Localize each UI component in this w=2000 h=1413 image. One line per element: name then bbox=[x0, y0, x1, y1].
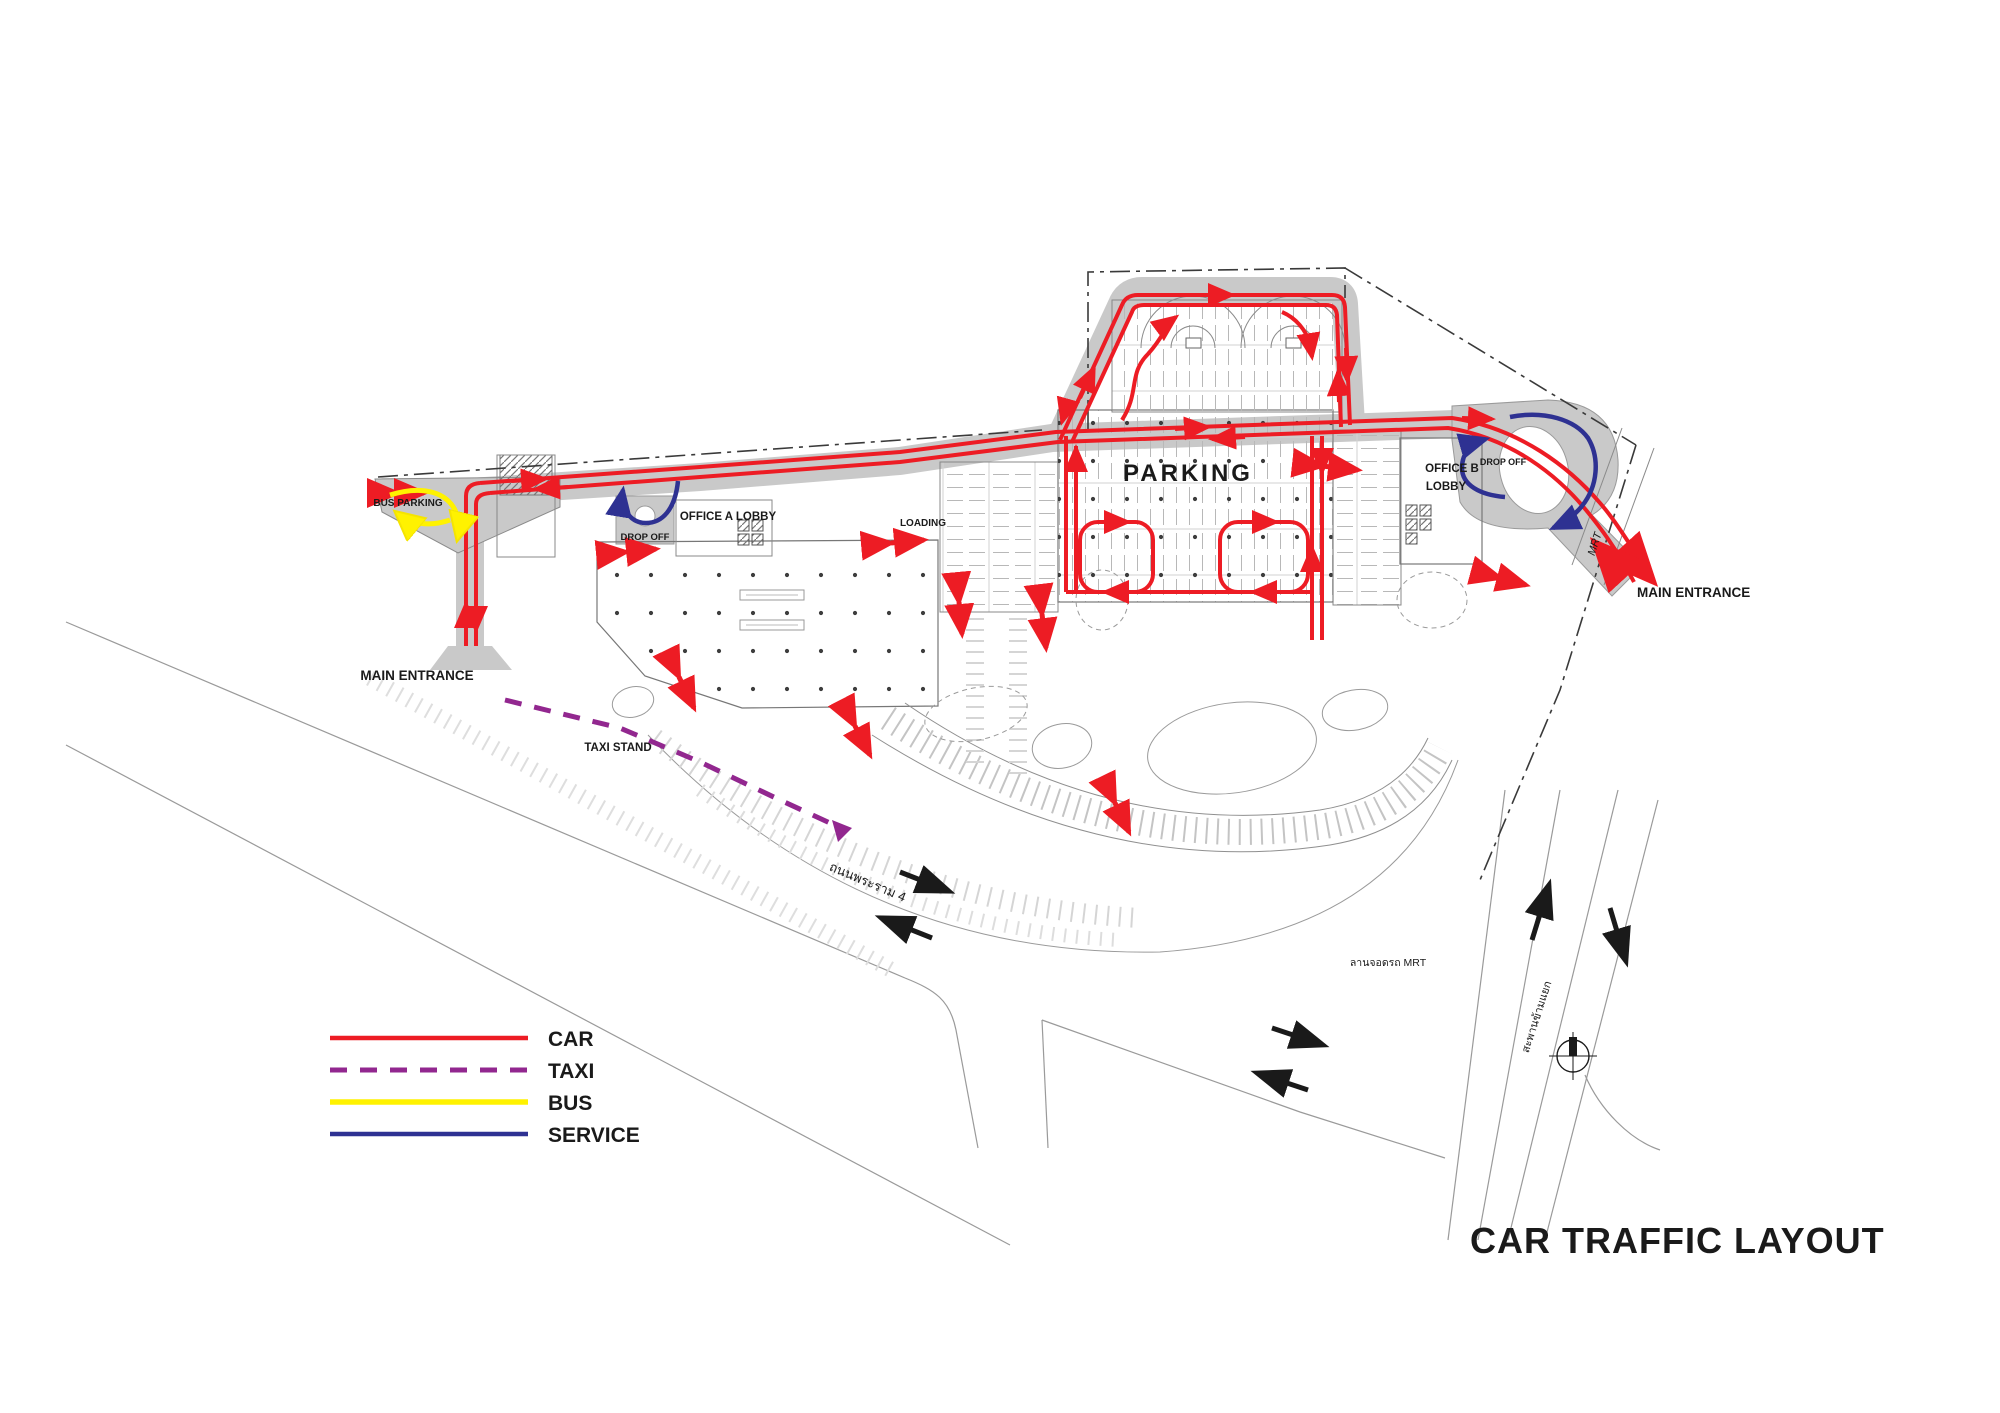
office-b-lobby-label-2: LOBBY bbox=[1426, 481, 1467, 493]
parking-label: PARKING bbox=[1123, 460, 1253, 487]
right-road-slip bbox=[1585, 1075, 1660, 1150]
drawing-title: CAR TRAFFIC LAYOUT bbox=[1470, 1220, 1885, 1261]
loading-label: LOADING bbox=[900, 518, 946, 529]
left-entrance-flare bbox=[430, 646, 512, 670]
site-plan-canvas: PARKING BUS PARKING DROP OFF OFFICE A LO… bbox=[0, 0, 2000, 1413]
rama4-road-upper-curb-east bbox=[1042, 1020, 1445, 1158]
road-branch-west-line bbox=[905, 978, 978, 1148]
loading-dock bbox=[940, 462, 1058, 612]
sidewalk-hatch-strip bbox=[370, 678, 895, 972]
taxi-arrowhead bbox=[832, 820, 852, 842]
road-direction-arrows bbox=[884, 872, 1625, 1090]
overpass-label: สะพานข้ามแยก bbox=[1520, 980, 1555, 1055]
office-b-lobby-label-1: OFFICE B bbox=[1425, 463, 1479, 475]
main-entrance-left-label: MAIN ENTRANCE bbox=[360, 668, 473, 683]
rama4-road-label: ถนนพระราม 4 bbox=[827, 859, 908, 905]
legend-label-bus: BUS bbox=[548, 1092, 592, 1115]
legend: CAR TAXI BUS SERVICE bbox=[330, 1028, 640, 1147]
taxi-stand-label: TAXI STAND bbox=[584, 742, 651, 754]
drop-off-a-label: DROP OFF bbox=[621, 532, 670, 543]
crescent-stalls bbox=[888, 718, 1440, 832]
office-b-elevators bbox=[1406, 505, 1431, 544]
office-a-lobby-label: OFFICE A LOBBY bbox=[680, 511, 777, 523]
bus-parking-label: BUS PARKING bbox=[373, 498, 442, 509]
legend-label-car: CAR bbox=[548, 1028, 594, 1051]
east-block bbox=[1333, 430, 1401, 605]
right-road-lane-3 bbox=[1508, 790, 1618, 1240]
legend-label-service: SERVICE bbox=[548, 1124, 640, 1147]
legend-label-taxi: TAXI bbox=[548, 1060, 594, 1083]
survey-marker-symbol bbox=[1549, 1032, 1597, 1080]
mrt-parking-lot-label: ลานจอดรถ MRT bbox=[1350, 957, 1427, 969]
right-road-lane-1 bbox=[1448, 790, 1505, 1240]
crescent-inner-edge bbox=[905, 703, 1428, 815]
taxi-route bbox=[505, 700, 852, 842]
rama4-road-lower-curb bbox=[66, 745, 1010, 1245]
external-roads bbox=[66, 622, 1660, 1245]
road-branch-east-line bbox=[1042, 1020, 1048, 1148]
taxi-line bbox=[505, 700, 830, 823]
site-plan-svg: PARKING BUS PARKING DROP OFF OFFICE A LO… bbox=[0, 0, 2000, 1413]
drop-off-b-label: DROP OFF bbox=[1480, 457, 1527, 467]
main-entrance-right-label: MAIN ENTRANCE bbox=[1637, 585, 1750, 600]
